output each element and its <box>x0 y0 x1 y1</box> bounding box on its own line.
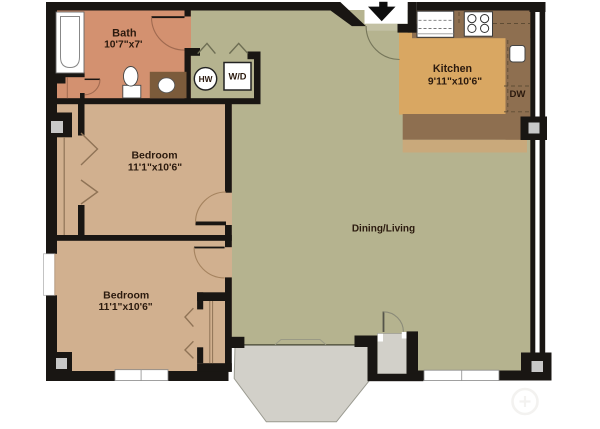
svg-text:HW: HW <box>199 74 213 84</box>
svg-text:Kitchen: Kitchen <box>433 63 472 75</box>
svg-text:DW: DW <box>510 89 527 100</box>
svg-text:Bedroom: Bedroom <box>131 149 177 161</box>
svg-text:W/D: W/D <box>228 72 246 82</box>
svg-text:Bedroom: Bedroom <box>103 290 149 302</box>
svg-text:9'11"x10'6": 9'11"x10'6" <box>428 76 482 87</box>
svg-text:11'1"x10'6": 11'1"x10'6" <box>128 162 182 173</box>
svg-text:11'1"x10'6": 11'1"x10'6" <box>99 302 153 313</box>
svg-text:Bath: Bath <box>112 28 137 40</box>
svg-text:Dining/Living: Dining/Living <box>352 224 415 235</box>
svg-text:10'7"x7': 10'7"x7' <box>104 39 142 50</box>
